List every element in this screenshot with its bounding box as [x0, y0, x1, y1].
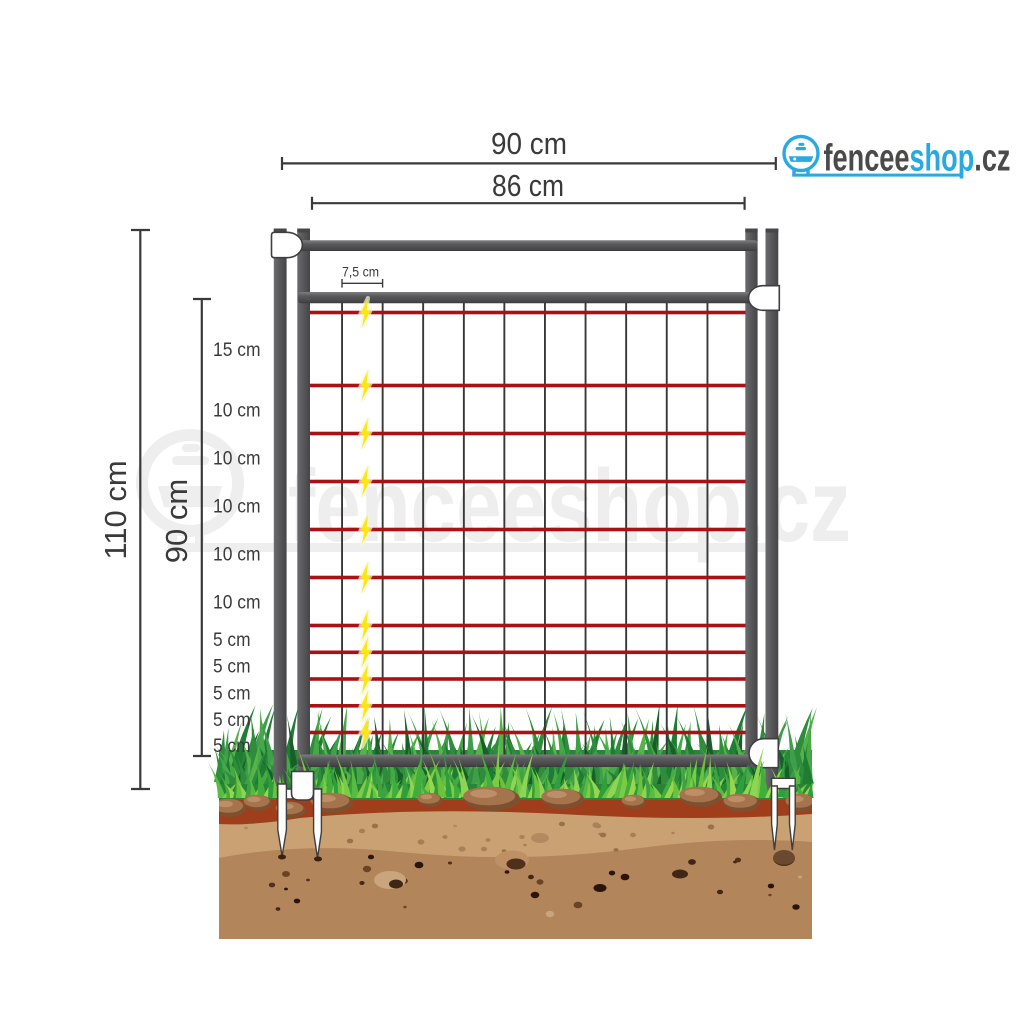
svg-text:5 cm: 5 cm — [213, 656, 251, 678]
svg-text:10 cm: 10 cm — [213, 592, 261, 614]
svg-text:10 cm: 10 cm — [213, 400, 261, 422]
svg-text:5 cm: 5 cm — [213, 629, 251, 651]
svg-text:86 cm: 86 cm — [492, 168, 564, 203]
svg-text:5 cm: 5 cm — [213, 682, 251, 704]
svg-text:7,5 cm: 7,5 cm — [342, 265, 379, 280]
svg-text:15 cm: 15 cm — [213, 339, 261, 361]
svg-text:10 cm: 10 cm — [213, 496, 261, 518]
svg-text:fenceeshop.cz: fenceeshop.cz — [824, 138, 1011, 180]
svg-text:5 cm: 5 cm — [213, 735, 251, 757]
svg-text:5 cm: 5 cm — [213, 709, 251, 731]
svg-text:110 cm: 110 cm — [98, 460, 133, 559]
svg-text:10 cm: 10 cm — [213, 448, 261, 470]
svg-text:90 cm: 90 cm — [159, 479, 194, 563]
svg-text:90 cm: 90 cm — [491, 126, 567, 161]
svg-text:10 cm: 10 cm — [213, 544, 261, 566]
